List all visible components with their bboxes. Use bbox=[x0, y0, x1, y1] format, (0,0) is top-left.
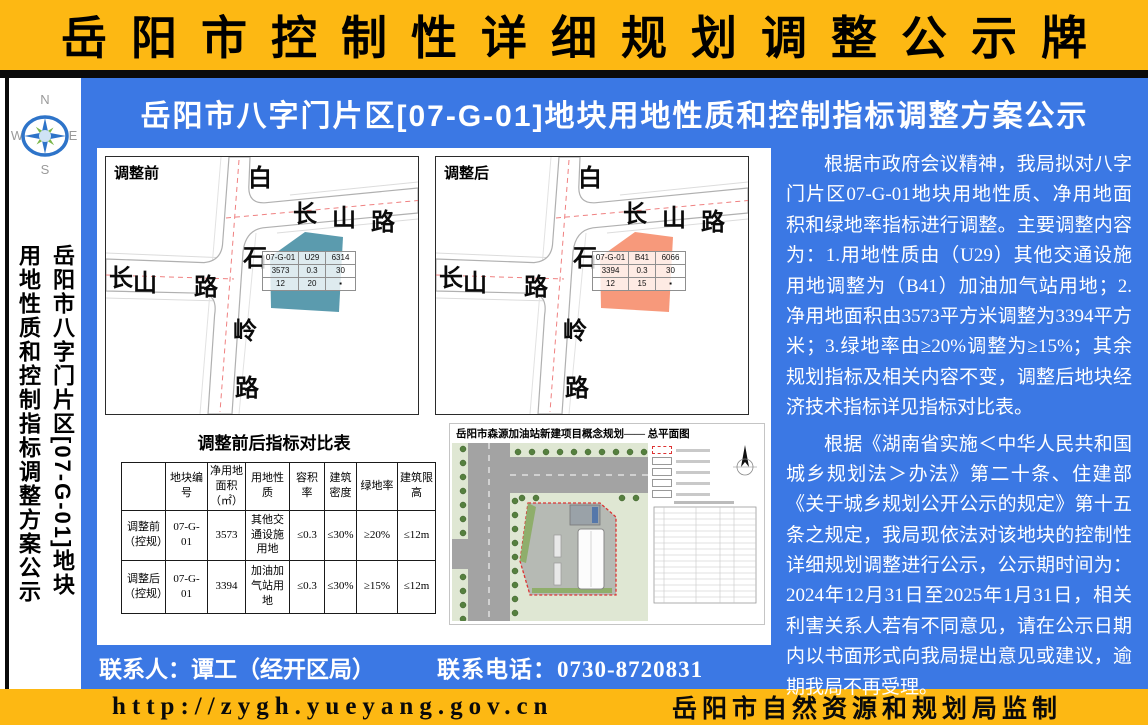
map-after-title: 调整后 bbox=[444, 162, 489, 183]
contact-person: 联系人：谭工（经开区局） bbox=[99, 650, 375, 684]
contact-row: 联系人：谭工（经开区局） 联系电话：0730-8720831 bbox=[81, 645, 1148, 689]
comparison-row-after: 调整后（控规） 07-G-01 3394 加油加气站用地 ≤0.3 ≤30% ≥… bbox=[122, 560, 436, 613]
road-label-ling: 岭 bbox=[563, 320, 587, 344]
legend-swatch bbox=[652, 457, 672, 465]
legend-swatch bbox=[652, 468, 672, 476]
notice-paragraph-1: 根据市政府会议精神，我局拟对八字门片区07-G-01地块用地性质、净用地面积和绿… bbox=[786, 150, 1132, 424]
sidebar-title-line2: 用地性质和控制指标调整方案公示 bbox=[11, 244, 45, 668]
comparison-header-row: 地块编号 净用地面积（㎡） 用地性质 容积率 建筑密度 绿地率 建筑限高 bbox=[122, 463, 436, 511]
svg-text:N: N bbox=[40, 92, 49, 107]
road-label-bai: 白 bbox=[248, 167, 272, 191]
svg-text:S: S bbox=[41, 162, 50, 177]
legend-swatch bbox=[652, 446, 672, 454]
road-label-lu-r: 路 bbox=[701, 211, 725, 235]
road-label-shan-l: 山 bbox=[133, 272, 157, 296]
subtitle-row: 岳阳市八字门片区[07-G-01]地块用地性质和控制指标调整方案公示 bbox=[81, 78, 1148, 148]
bottom-row: 调整前后指标对比表 地块编号 净用地面积（㎡） bbox=[103, 423, 765, 625]
comparison-table: 地块编号 净用地面积（㎡） 用地性质 容积率 建筑密度 绿地率 建筑限高 调整前 bbox=[121, 462, 436, 614]
main-area: 岳阳市八字门片区[07-G-01]地块用地性质和控制指标调整方案公示 bbox=[81, 78, 1148, 689]
road-label-chang-r: 长 bbox=[293, 203, 317, 227]
content-row: 调整前 白 石 岭 路 长 山 路 长 山 路 07-G- bbox=[81, 148, 1148, 709]
site-plan-index-table bbox=[652, 501, 758, 605]
map-before-title: 调整前 bbox=[114, 162, 159, 183]
map-after: 调整后 白 石 岭 路 长 山 路 长 山 路 07-G- bbox=[435, 156, 749, 415]
road-label-lu-l: 路 bbox=[524, 276, 548, 300]
road-label-bai: 白 bbox=[578, 167, 602, 191]
road-label-ling: 岭 bbox=[233, 320, 257, 344]
parcel-info-table-after: 07-G-01 B41 6066 3394 0.3 30 12 15 ▪ bbox=[592, 251, 686, 291]
notice-subtitle: 岳阳市八字门片区[07-G-01]地块用地性质和控制指标调整方案公示 bbox=[140, 91, 1088, 135]
sidebar-vertical-title: 岳阳市八字门片区[07-G-01]地块 用地性质和控制指标调整方案公示 bbox=[11, 244, 79, 668]
road-label-chang-r: 长 bbox=[623, 203, 647, 227]
map-before: 调整前 白 石 岭 路 长 山 路 长 山 路 07-G- bbox=[105, 156, 419, 415]
sidebar: N W E S 岳阳市八字门片区[07-G-01]地块 用地性质和控制指标调整方… bbox=[9, 78, 81, 689]
north-arrow-icon bbox=[732, 443, 758, 479]
road-label-chang-l: 长 bbox=[109, 267, 133, 291]
comparison-block: 调整前后指标对比表 地块编号 净用地面积（㎡） bbox=[103, 423, 445, 625]
site-plan-title: 岳阳市森源加油站新建项目概念规划—— 总平面图 bbox=[456, 426, 762, 441]
content-panel: 调整前 白 石 岭 路 长 山 路 长 山 路 07-G- bbox=[97, 148, 771, 645]
header-banner: 岳阳市控制性详细规划调整公示牌 bbox=[0, 0, 1148, 78]
road-label-shan-r: 山 bbox=[662, 207, 686, 231]
poster-title: 岳阳市控制性详细规划调整公示牌 bbox=[37, 2, 1111, 68]
planning-notice-poster: 岳阳市控制性详细规划调整公示牌 N W E S 岳阳市八字门片区[07 bbox=[0, 0, 1148, 725]
body-row: N W E S 岳阳市八字门片区[07-G-01]地块 用地性质和控制指标调整方… bbox=[0, 78, 1148, 689]
legend-swatch bbox=[652, 479, 672, 487]
maps-row: 调整前 白 石 岭 路 长 山 路 长 山 路 07-G- bbox=[105, 156, 765, 415]
road-label-lu: 路 bbox=[565, 377, 589, 401]
road-label-chang-l: 长 bbox=[439, 267, 463, 291]
road-label-lu-l: 路 bbox=[194, 276, 218, 300]
site-plan-legend bbox=[648, 443, 762, 621]
notice-text-column: 根据市政府会议精神，我局拟对八字门片区07-G-01地块用地性质、净用地面积和绿… bbox=[771, 148, 1148, 709]
svg-text:E: E bbox=[69, 128, 78, 143]
compass-icon: N W E S bbox=[9, 90, 81, 178]
comparison-row-before: 调整前（控规） 07-G-01 3573 其他交通设施用地 ≤0.3 ≤30% … bbox=[122, 510, 436, 560]
road-label-shan-l: 山 bbox=[463, 272, 487, 296]
comparison-title: 调整前后指标对比表 bbox=[103, 429, 445, 454]
site-plan-body bbox=[452, 443, 762, 621]
site-plan-map-graphic bbox=[452, 443, 648, 621]
contact-phone: 联系电话：0730-8720831 bbox=[437, 650, 703, 684]
site-plan-block: 岳阳市森源加油站新建项目概念规划—— 总平面图 bbox=[449, 423, 765, 625]
parcel-info-table-before: 07-G-01 U29 6314 3573 0.3 30 12 20 ▪ bbox=[262, 251, 356, 291]
legend-swatch bbox=[652, 490, 672, 498]
road-label-shan-r: 山 bbox=[332, 207, 356, 231]
road-label-lu-r: 路 bbox=[371, 211, 395, 235]
sidebar-title-line1: 岳阳市八字门片区[07-G-01]地块 bbox=[45, 244, 79, 668]
road-label-lu: 路 bbox=[235, 377, 259, 401]
